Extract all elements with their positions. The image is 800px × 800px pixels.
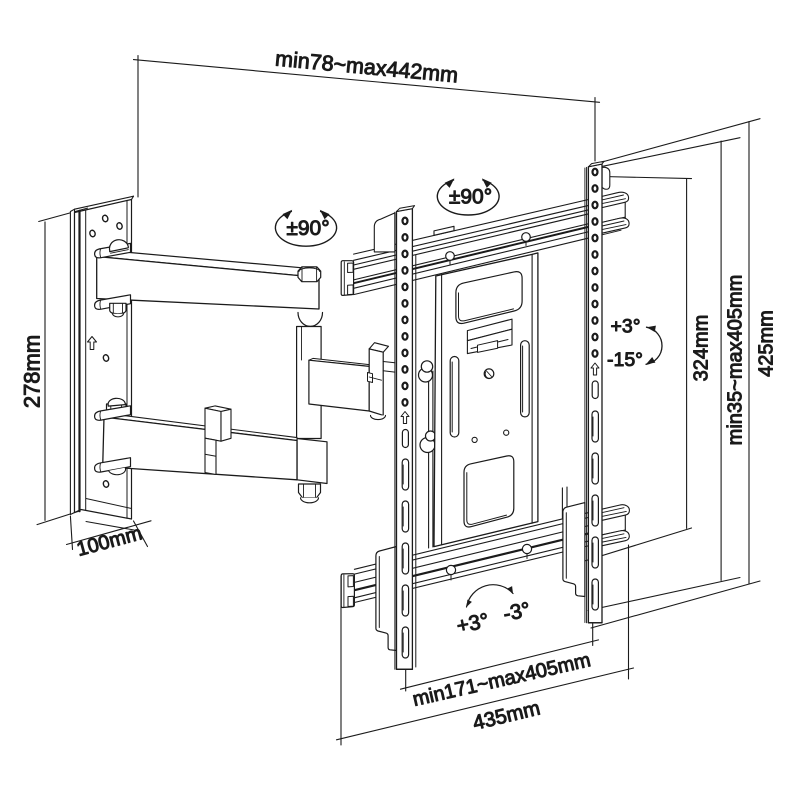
- svg-text:-15°: -15°: [607, 349, 643, 371]
- svg-text:278mm: 278mm: [20, 335, 45, 408]
- svg-text:+3°: +3°: [610, 315, 640, 337]
- svg-text:±90°: ±90°: [286, 217, 329, 240]
- svg-text:±90°: ±90°: [449, 185, 492, 208]
- svg-text:425mm: 425mm: [756, 310, 778, 377]
- svg-text:324mm: 324mm: [691, 315, 713, 382]
- svg-text:min35~max405mm: min35~max405mm: [725, 275, 747, 446]
